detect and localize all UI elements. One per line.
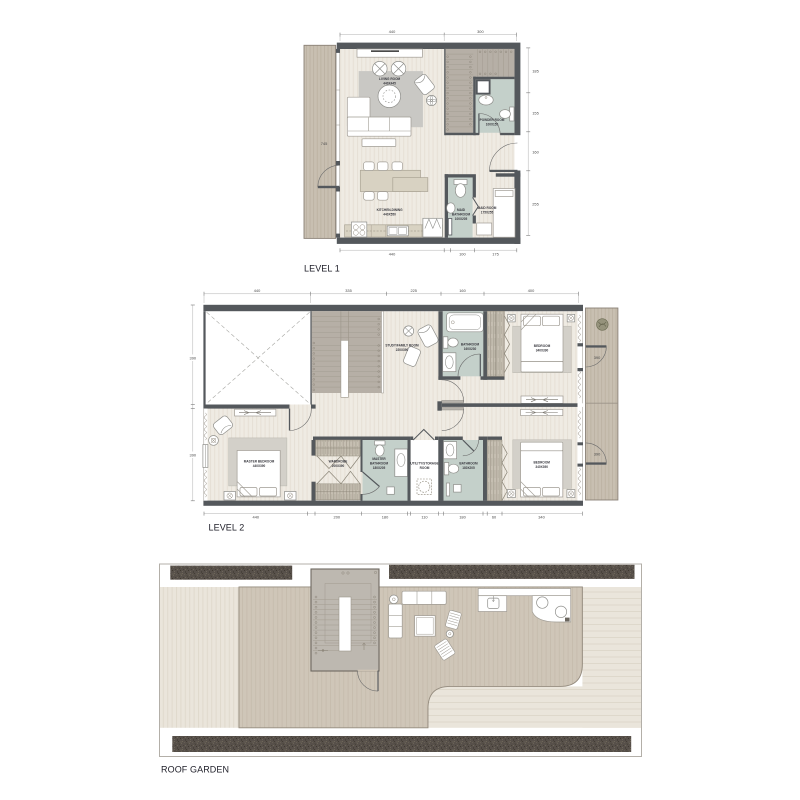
- svg-text:MASTER BEDROOM: MASTER BEDROOM: [244, 460, 275, 464]
- svg-text:BATHROOM: BATHROOM: [370, 462, 389, 466]
- svg-text:BATHROOM: BATHROOM: [461, 343, 480, 347]
- svg-text:100: 100: [459, 252, 466, 257]
- svg-text:185: 185: [532, 69, 539, 74]
- svg-text:390: 390: [190, 453, 197, 458]
- svg-text:LEVEL 1: LEVEL 1: [304, 264, 340, 274]
- svg-text:440: 440: [389, 252, 396, 257]
- svg-text:220X390: 220X390: [396, 348, 409, 352]
- svg-text:180X205: 180X205: [373, 466, 386, 470]
- svg-text:440X550: 440X550: [383, 213, 396, 217]
- svg-text:440: 440: [389, 29, 396, 34]
- svg-text:225: 225: [410, 288, 417, 293]
- svg-text:400: 400: [528, 288, 535, 293]
- svg-text:335: 335: [345, 288, 352, 293]
- svg-text:MAID: MAID: [457, 208, 466, 212]
- svg-text:MAID ROOM: MAID ROOM: [478, 206, 497, 210]
- svg-text:255: 255: [532, 202, 539, 207]
- svg-text:POWDER ROOM: POWDER ROOM: [480, 118, 505, 122]
- svg-text:LIVING ROOM: LIVING ROOM: [379, 77, 400, 81]
- svg-text:440: 440: [254, 288, 261, 293]
- svg-text:100X205: 100X205: [455, 217, 468, 221]
- svg-text:175: 175: [492, 252, 499, 257]
- svg-text:440: 440: [253, 514, 260, 519]
- svg-text:160: 160: [532, 150, 539, 155]
- svg-text:180: 180: [382, 514, 389, 519]
- svg-text:390: 390: [190, 356, 197, 361]
- svg-text:160X230: 160X230: [464, 347, 477, 351]
- svg-text:STUDY/FAMILY ROOM: STUDY/FAMILY ROOM: [385, 344, 419, 348]
- svg-text:KITCHEN-DINING: KITCHEN-DINING: [377, 208, 404, 212]
- svg-text:BATHROOM: BATHROOM: [452, 213, 471, 217]
- svg-text:160: 160: [459, 288, 466, 293]
- svg-text:LEVEL 2: LEVEL 2: [209, 523, 245, 533]
- svg-text:390: 390: [594, 355, 601, 360]
- svg-text:BEDROOM: BEDROOM: [533, 461, 550, 465]
- svg-text:390: 390: [594, 452, 601, 457]
- svg-text:300: 300: [477, 29, 484, 34]
- svg-text:175X255: 175X255: [481, 211, 494, 215]
- svg-text:340X390: 340X390: [536, 349, 549, 353]
- svg-text:340X390: 340X390: [535, 465, 548, 469]
- svg-text:155: 155: [532, 111, 539, 116]
- svg-text:200X390: 200X390: [332, 464, 345, 468]
- svg-text:200: 200: [334, 514, 341, 519]
- svg-text:BEDROOM: BEDROOM: [534, 344, 551, 348]
- svg-text:MASTER: MASTER: [372, 457, 386, 461]
- svg-text:340: 340: [538, 514, 545, 519]
- svg-text:440X390: 440X390: [253, 464, 266, 468]
- svg-text:110: 110: [421, 514, 428, 519]
- svg-text:745: 745: [321, 141, 328, 146]
- svg-text:180: 180: [459, 514, 466, 519]
- svg-text:BATHROOM: BATHROOM: [459, 462, 478, 466]
- svg-text:WARDROBE: WARDROBE: [329, 460, 348, 464]
- svg-text:ROOF GARDEN: ROOF GARDEN: [161, 765, 229, 775]
- svg-text:180X205: 180X205: [462, 466, 475, 470]
- svg-text:UTILITY/STORAGE: UTILITY/STORAGE: [410, 462, 438, 466]
- svg-text:ROOM: ROOM: [420, 466, 430, 470]
